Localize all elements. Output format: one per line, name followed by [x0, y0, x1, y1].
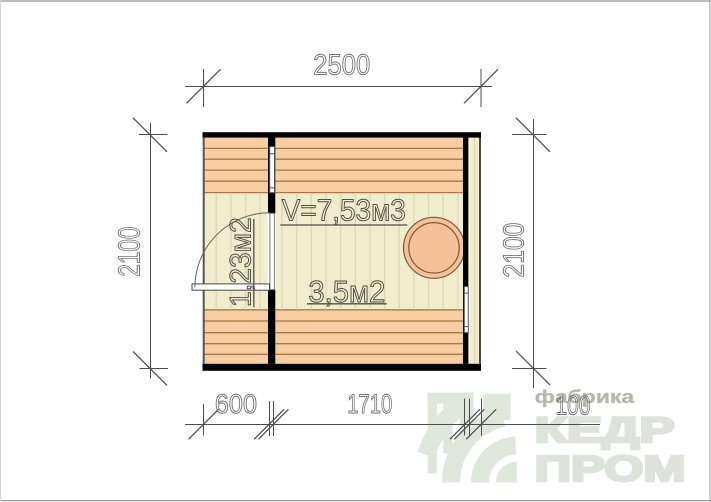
svg-text:V=7,53м3: V=7,53м3	[282, 193, 406, 228]
svg-text:100: 100	[556, 391, 591, 421]
svg-text:600: 600	[215, 389, 257, 419]
svg-text:2100: 2100	[499, 223, 531, 278]
svg-text:2100: 2100	[112, 227, 147, 277]
svg-text:2500: 2500	[313, 50, 370, 82]
svg-text:1,23м2: 1,23м2	[224, 217, 257, 307]
svg-text:ПРОМ: ПРОМ	[535, 448, 686, 489]
svg-text:1710: 1710	[347, 389, 392, 419]
